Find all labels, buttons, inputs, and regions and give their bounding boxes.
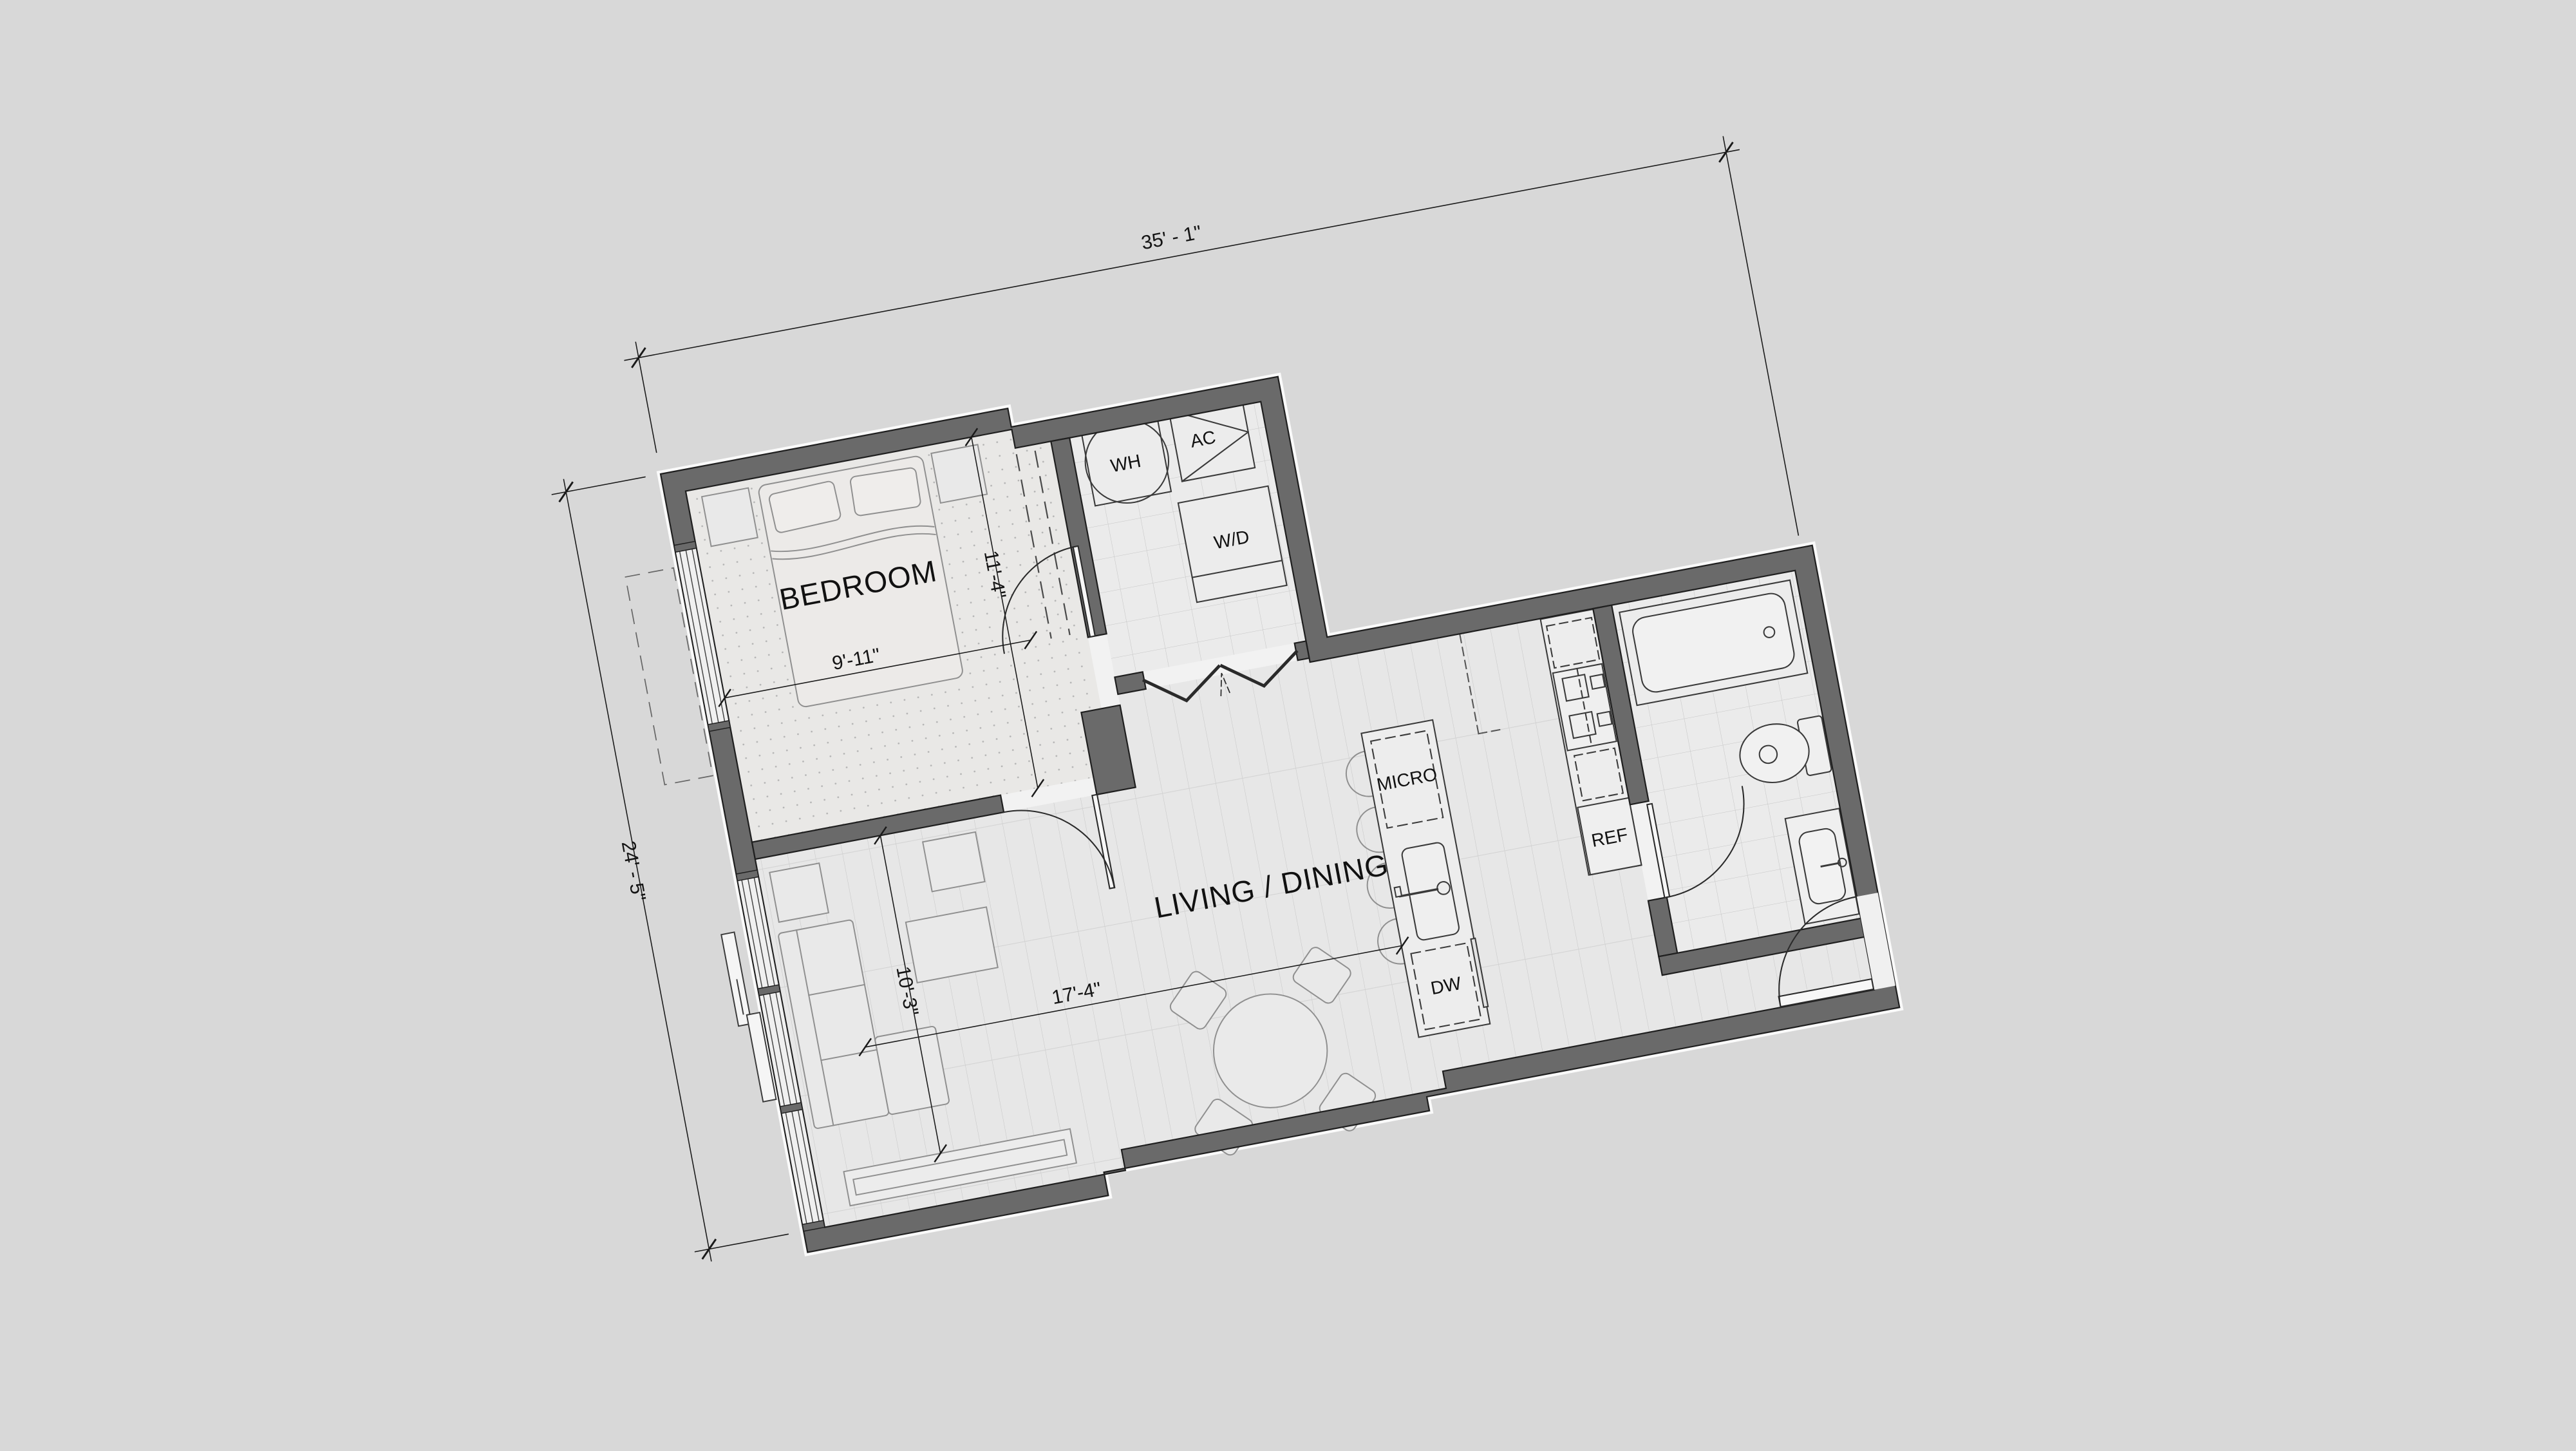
floor-plan-page: BEDROOM LIVING / DINING WH AC W/D MICRO … bbox=[0, 0, 2576, 1451]
ac-label: AC bbox=[1189, 427, 1217, 452]
side-table bbox=[923, 832, 984, 892]
floor-plan-canvas: BEDROOM LIVING / DINING WH AC W/D MICRO … bbox=[0, 0, 2576, 1451]
nightstand-left bbox=[702, 488, 758, 547]
end-table bbox=[769, 863, 829, 922]
